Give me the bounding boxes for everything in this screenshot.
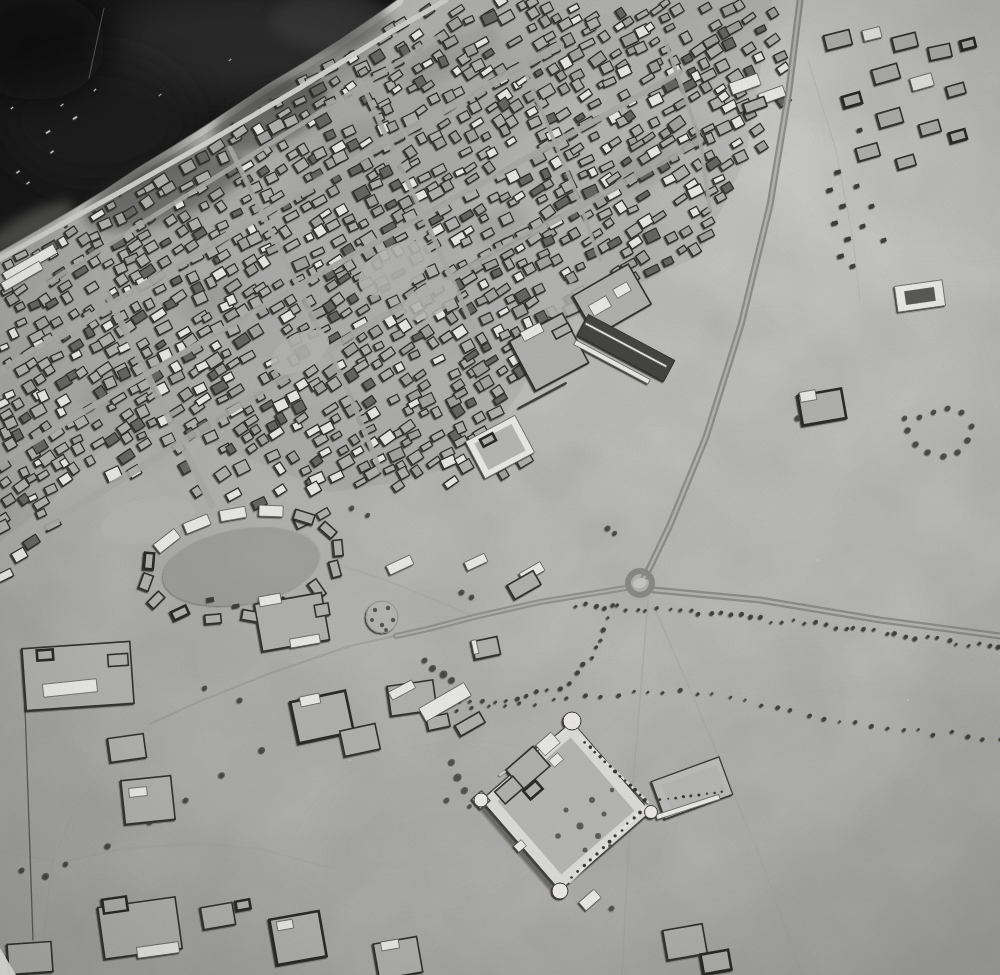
aerial-photograph xyxy=(0,0,1000,975)
layer-film-artifacts xyxy=(0,0,1000,975)
aerial-photo-figure xyxy=(0,0,1000,975)
film-grain xyxy=(0,0,1000,975)
